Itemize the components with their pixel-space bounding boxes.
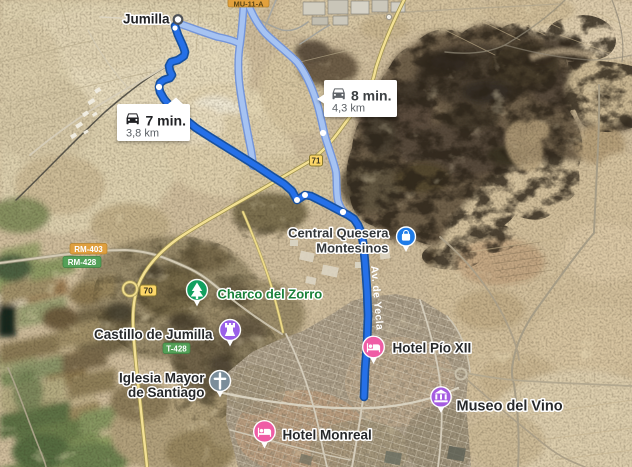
svg-text:de Santiago: de Santiago [128,385,205,400]
svg-text:Jumilla: Jumilla [123,12,170,27]
svg-text:RM-428: RM-428 [68,258,97,267]
svg-text:3,8 km: 3,8 km [126,128,159,140]
svg-text:4,3 km: 4,3 km [332,103,365,115]
svg-text:Central Quesera: Central Quesera [288,226,389,241]
svg-text:T-428: T-428 [166,344,187,353]
svg-text:Hotel Monreal: Hotel Monreal [283,428,372,443]
svg-text:Montesinos: Montesinos [316,241,388,256]
svg-text:Castillo de Jumilla: Castillo de Jumilla [94,327,213,342]
svg-text:70: 70 [143,286,153,296]
svg-text:RM-403: RM-403 [74,245,103,254]
svg-text:Museo del Vino: Museo del Vino [457,399,563,415]
svg-text:71: 71 [312,157,321,166]
svg-text:7 min.: 7 min. [146,113,186,129]
svg-text:MU-11-A: MU-11-A [233,0,264,9]
svg-text:Hotel Pío XII: Hotel Pío XII [393,341,472,356]
svg-text:Charco del Zorro: Charco del Zorro [218,287,323,302]
svg-text:8 min.: 8 min. [351,88,391,104]
svg-text:Iglesia Mayor: Iglesia Mayor [119,371,205,386]
